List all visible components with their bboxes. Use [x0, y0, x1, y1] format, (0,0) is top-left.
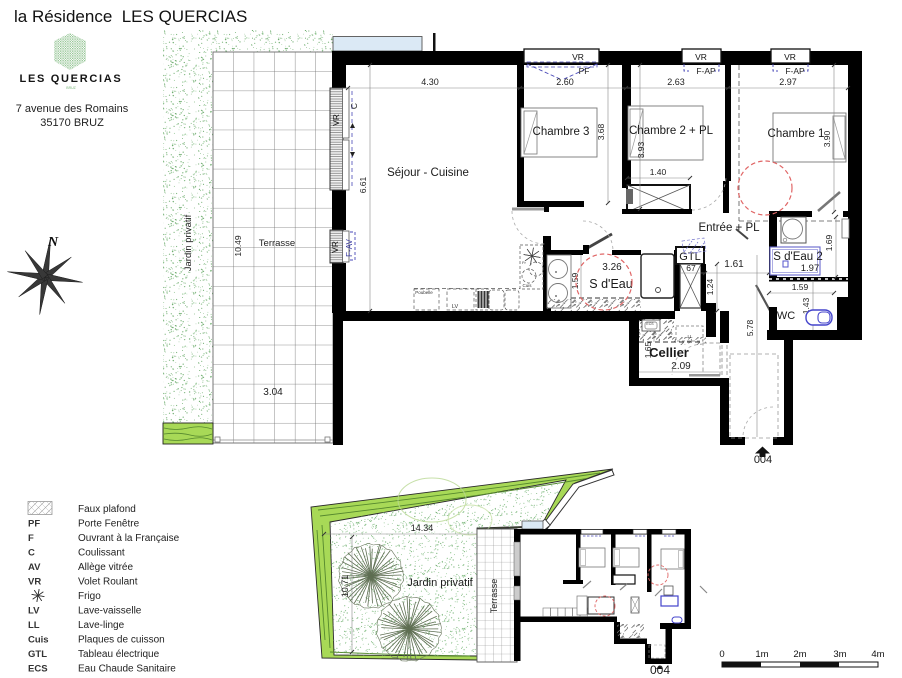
svg-text:LES QUERCIAS: LES QUERCIAS [20, 73, 123, 85]
svg-text:Lave-vaisselle: Lave-vaisselle [78, 606, 142, 617]
svg-text:3m: 3m [833, 649, 846, 660]
svg-text:N: N [47, 235, 59, 250]
svg-text:Plaques de cuisson: Plaques de cuisson [78, 635, 165, 646]
svg-text:1.69: 1.69 [824, 234, 834, 251]
svg-text:Terrasse: Terrasse [489, 579, 499, 614]
svg-text:F-AV: F-AV [345, 239, 354, 257]
svg-text:2m: 2m [793, 649, 806, 660]
svg-text:F-AP: F-AP [785, 66, 805, 76]
svg-text:Poubelle: Poubelle [415, 290, 433, 295]
svg-text:Séjour - Cuisine: Séjour - Cuisine [387, 167, 469, 179]
svg-text:Lave-linge: Lave-linge [78, 620, 125, 631]
svg-text:4m: 4m [871, 649, 884, 660]
svg-text:ECS: ECS [646, 322, 654, 326]
svg-text:67: 67 [686, 263, 696, 273]
svg-text:LL: LL [28, 620, 40, 631]
svg-text:F-AP: F-AP [696, 66, 716, 76]
svg-text:ECS: ECS [28, 664, 48, 675]
svg-text:LL: LL [687, 334, 693, 339]
svg-text:1.40: 1.40 [650, 167, 667, 177]
svg-text:3.90: 3.90 [822, 130, 832, 147]
svg-text:14.34: 14.34 [411, 523, 434, 533]
svg-text:2.60: 2.60 [556, 77, 574, 87]
svg-text:Chambre 3: Chambre 3 [533, 126, 590, 138]
svg-text:1.61: 1.61 [724, 259, 744, 270]
svg-text:2.97: 2.97 [779, 77, 797, 87]
svg-text:4.30: 4.30 [421, 77, 439, 87]
svg-text:35170 BRUZ: 35170 BRUZ [40, 117, 104, 129]
svg-text:Tableau électrique: Tableau électrique [78, 649, 160, 660]
svg-text:7 avenue des Romains: 7 avenue des Romains [16, 103, 129, 115]
svg-text:004: 004 [650, 663, 670, 677]
svg-text:Allège vitrée: Allège vitrée [78, 562, 133, 573]
svg-text:Cuis: Cuis [522, 283, 532, 288]
svg-text:Volet Roulant: Volet Roulant [78, 577, 138, 588]
svg-text:Coulissant: Coulissant [78, 548, 125, 559]
svg-text:VR: VR [572, 52, 584, 62]
svg-text:1.59: 1.59 [570, 272, 580, 289]
svg-text:3.68: 3.68 [596, 123, 606, 140]
svg-text:Fr: Fr [522, 260, 526, 265]
svg-text:Frigo: Frigo [78, 591, 101, 602]
svg-text:LV: LV [28, 606, 40, 617]
svg-text:C: C [28, 548, 35, 559]
svg-text:Cellier: Cellier [649, 345, 689, 360]
svg-text:Ouvrant à la Française: Ouvrant à la Française [78, 533, 180, 544]
svg-text:1.59: 1.59 [792, 282, 809, 292]
svg-text:Entrée + PL: Entrée + PL [698, 222, 760, 234]
svg-text:10.71: 10.71 [340, 575, 350, 598]
svg-text:1.97: 1.97 [801, 263, 820, 274]
svg-text:0: 0 [719, 649, 724, 660]
svg-text:Eau Chaude Sanitaire: Eau Chaude Sanitaire [78, 664, 176, 675]
svg-text:GTL: GTL [28, 649, 47, 660]
svg-text:Jardin privatif: Jardin privatif [407, 577, 473, 589]
svg-text:PF: PF [28, 519, 40, 530]
svg-text:5.78: 5.78 [745, 319, 755, 336]
svg-text:PF: PF [579, 66, 590, 76]
svg-text:1m: 1m [755, 649, 768, 660]
svg-text:S d'Eau 2: S d'Eau 2 [773, 251, 823, 263]
svg-text:3.93: 3.93 [636, 141, 646, 158]
svg-text:VR: VR [695, 52, 707, 62]
svg-text:VR: VR [28, 577, 41, 588]
svg-text:LV: LV [452, 304, 459, 310]
svg-text:Faux plafond: Faux plafond [78, 504, 136, 515]
svg-text:3.26: 3.26 [602, 262, 622, 273]
svg-text:S d'Eau: S d'Eau [589, 277, 632, 291]
svg-text:C: C [349, 103, 359, 109]
svg-text:BRUZ: BRUZ [66, 86, 76, 90]
svg-text:Cuis: Cuis [28, 635, 49, 646]
svg-text:6.61: 6.61 [358, 176, 368, 193]
svg-text:Chambre 1: Chambre 1 [768, 128, 825, 140]
svg-text:Chambre 2 + PL: Chambre 2 + PL [629, 125, 714, 137]
svg-text:1.24: 1.24 [705, 278, 715, 295]
svg-text:1.65: 1.65 [643, 341, 653, 358]
svg-text:VR: VR [331, 114, 341, 126]
svg-text:Porte Fenêtre: Porte Fenêtre [78, 519, 140, 530]
svg-text:3.04: 3.04 [263, 387, 283, 398]
svg-text:VR: VR [330, 241, 340, 253]
svg-text:WC: WC [777, 310, 795, 322]
svg-text:VR: VR [784, 52, 796, 62]
svg-text:Terrasse: Terrasse [259, 238, 295, 249]
svg-text:004: 004 [754, 454, 772, 466]
svg-text:Jardin privatif: Jardin privatif [183, 214, 194, 271]
svg-text:10.49: 10.49 [233, 235, 243, 257]
svg-text:AV: AV [28, 562, 41, 573]
svg-text:F: F [28, 533, 34, 544]
svg-text:2.63: 2.63 [667, 77, 685, 87]
svg-text:la Résidence LES QUERCIAS: la Résidence LES QUERCIAS [14, 7, 247, 26]
